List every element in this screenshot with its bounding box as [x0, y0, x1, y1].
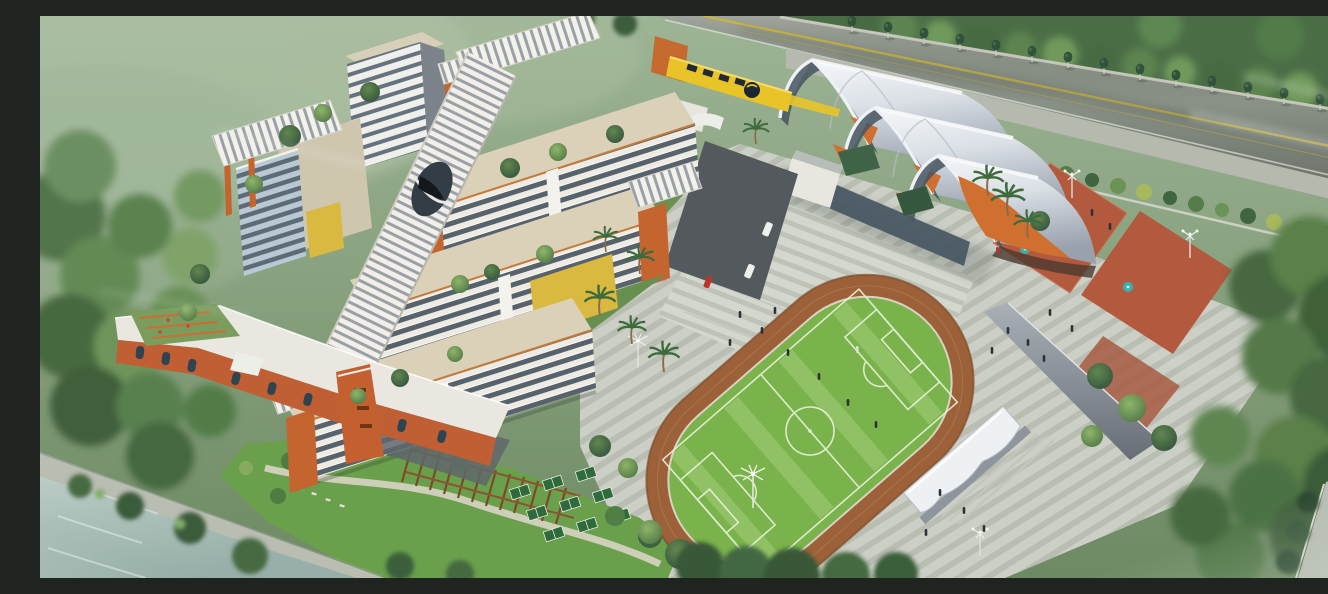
vignette: [40, 16, 1328, 578]
campus-scene: [40, 16, 1328, 578]
campus-rendering: Bird's-eye architectural rendering of a …: [40, 16, 1328, 578]
